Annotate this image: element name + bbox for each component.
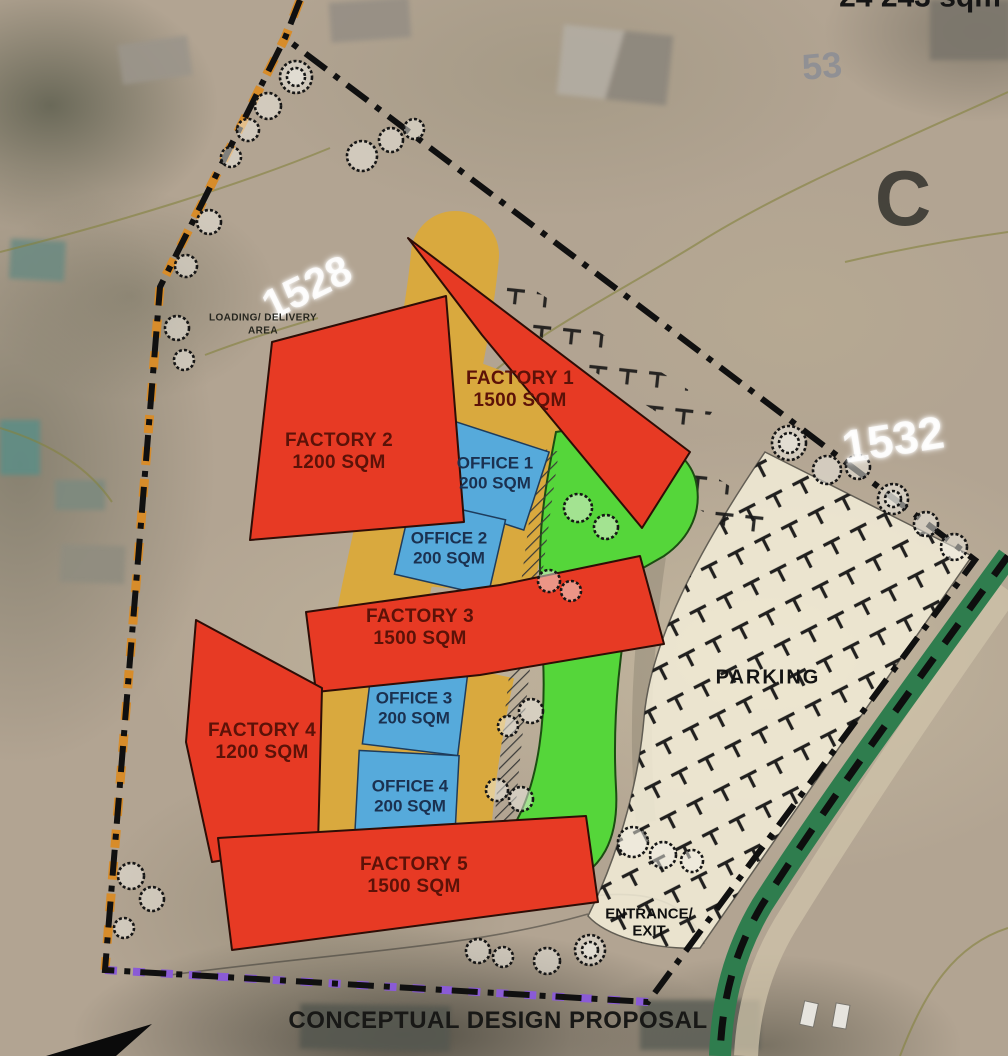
tree-icon — [493, 947, 513, 967]
tree-icon — [347, 141, 377, 171]
factory-5-shape — [218, 816, 598, 950]
car — [800, 1001, 819, 1027]
site-plan-drawing — [0, 0, 1008, 1056]
tree-icon — [650, 842, 676, 868]
tree-icon — [813, 456, 841, 484]
factory-4-shape — [186, 620, 322, 862]
contour-line — [0, 148, 330, 252]
tree-icon — [165, 316, 189, 340]
site-plan-canvas: 24 243 sqm 53 C 1528 1532 LOADING/ DELIV… — [0, 0, 1008, 1056]
parked-cars — [800, 1001, 850, 1029]
tree-icon — [486, 779, 508, 801]
tree-icon — [519, 699, 543, 723]
north-arrow-tip — [46, 1024, 152, 1056]
tree-icon — [941, 534, 967, 560]
tree-icon — [221, 147, 241, 167]
tree-icon — [287, 68, 305, 86]
tree-icon — [582, 942, 598, 958]
tree-icon — [534, 948, 560, 974]
tree-icon — [118, 863, 144, 889]
factory-2-shape — [250, 296, 464, 540]
tree-icon — [885, 491, 901, 507]
tree-icon — [618, 827, 648, 857]
tree-icon — [538, 570, 560, 592]
tree-icon — [174, 350, 194, 370]
tree-icon — [197, 210, 221, 234]
tree-icon — [466, 939, 490, 963]
tree-icon — [914, 512, 938, 536]
tree-icon — [561, 581, 581, 601]
tree-icon — [255, 93, 281, 119]
contour-line — [0, 428, 112, 502]
tree-icon — [140, 887, 164, 911]
tree-icon — [846, 455, 870, 479]
tree-icon — [779, 433, 799, 453]
tree-icon — [114, 918, 134, 938]
tree-icon — [498, 716, 518, 736]
tree-icon — [564, 494, 592, 522]
tree-icon — [379, 128, 403, 152]
tree-icon — [681, 850, 703, 872]
tree-icon — [509, 787, 533, 811]
contour-line — [900, 928, 1008, 1056]
tree-icon — [175, 255, 197, 277]
tree-icon — [237, 119, 259, 141]
car — [832, 1003, 850, 1029]
tree-icon — [594, 515, 618, 539]
tree-icon — [404, 119, 424, 139]
contour-line — [845, 232, 1008, 262]
